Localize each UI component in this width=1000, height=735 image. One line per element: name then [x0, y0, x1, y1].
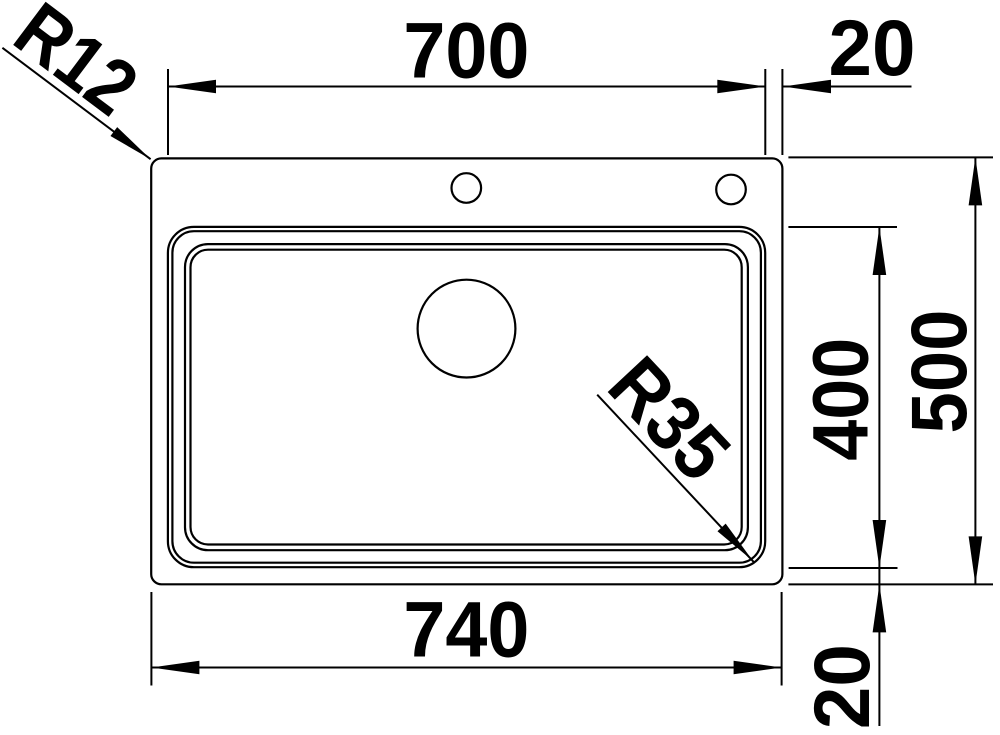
- svg-text:700: 700: [403, 7, 529, 95]
- svg-text:400: 400: [797, 338, 885, 461]
- svg-text:740: 740: [403, 586, 529, 674]
- svg-text:20: 20: [798, 644, 886, 729]
- svg-text:500: 500: [895, 310, 983, 434]
- svg-text:20: 20: [829, 4, 916, 92]
